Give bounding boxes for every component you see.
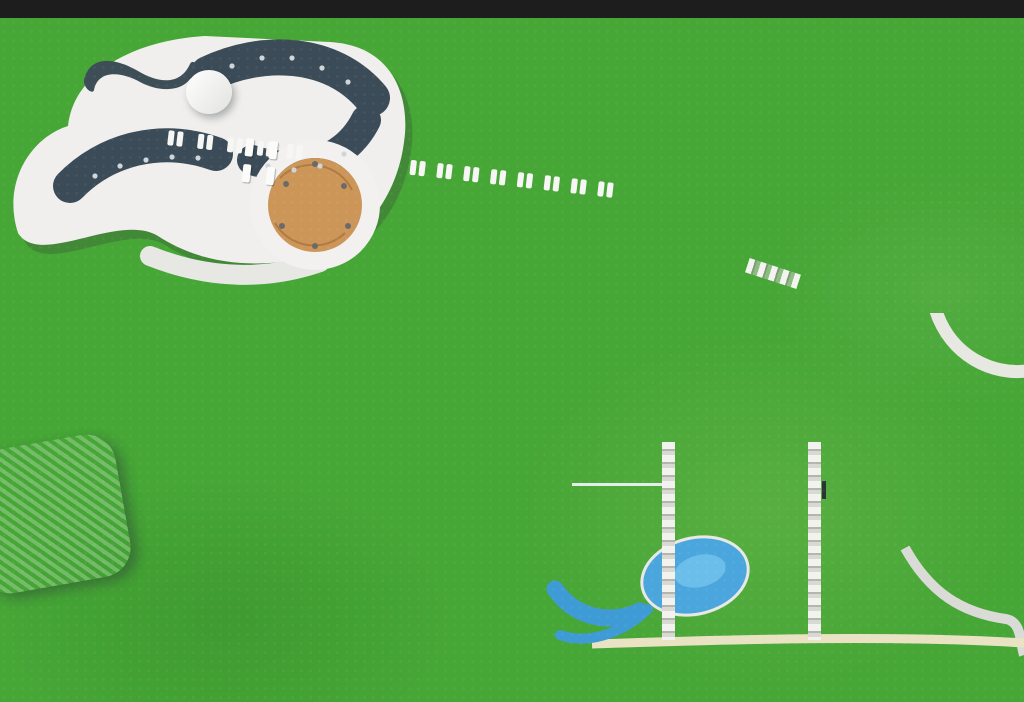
platform-lounger: [268, 141, 278, 160]
tree-icon: [541, 474, 569, 502]
tree-icon: [793, 406, 817, 430]
tree-icon: [642, 431, 668, 457]
road-lane-line: [0, 678, 1024, 680]
key-right: [822, 445, 864, 487]
tree-icon: [684, 400, 716, 432]
tree-icon: [214, 556, 246, 588]
shrub-tuft: [571, 614, 589, 630]
shrub-tuft: [523, 614, 541, 630]
resort-aerial-render: Propertync.com PROPERTYNC MEDIA COMPANY: [0, 18, 1024, 702]
tree-icon: [124, 572, 156, 604]
platform-lounger: [244, 138, 254, 157]
stairs: [745, 258, 801, 289]
sand-play-circle: [331, 549, 387, 601]
timber-pool-platform: [465, 248, 498, 277]
tree-icon: [535, 537, 561, 563]
spectator-steps-right: [808, 442, 821, 640]
sidewalk: [0, 638, 1024, 660]
tree-icon: [572, 498, 612, 538]
hoop-right: [822, 487, 826, 499]
shrub-tuft: [859, 614, 877, 630]
clubhouse-annex: [186, 70, 232, 114]
tree-icon: [892, 18, 918, 43]
football-pitch: [680, 436, 804, 648]
tree-icon: [916, 166, 944, 194]
tree-icon: [792, 18, 814, 31]
shrub-tuft: [1003, 614, 1021, 630]
tree-icon: [756, 18, 782, 37]
flower-bed: [180, 563, 210, 587]
spectator-steps-left: [662, 442, 675, 640]
tree-icon: [904, 208, 928, 232]
timber-pool-platform: [235, 131, 299, 195]
platform-lounger: [265, 167, 275, 186]
path-steps: [548, 408, 561, 616]
tree-icon: [656, 18, 678, 36]
tree-icon: [992, 18, 1022, 44]
tree-icon: [684, 18, 718, 38]
tree-icon: [55, 18, 77, 37]
tree-icon: [928, 18, 950, 37]
shrub-tuft: [763, 614, 781, 630]
tree-icon: [720, 18, 750, 43]
road: [0, 658, 1024, 702]
penalty-box-top: [649, 455, 711, 481]
shrub-tuft: [907, 614, 925, 630]
tree-icon: [548, 18, 582, 43]
tree-icon: [756, 401, 784, 429]
stairs: [874, 304, 890, 350]
tree-icon: [620, 18, 646, 42]
shrub-tuft: [715, 614, 733, 630]
shrub-tuft: [427, 614, 445, 630]
stairs: [800, 276, 863, 293]
shrub-tuft: [667, 614, 685, 630]
basketball-court: [822, 406, 998, 512]
shrub-tuft: [955, 614, 973, 630]
tree-icon: [398, 564, 442, 608]
tree-icon: [27, 23, 53, 49]
shrub-tuft: [475, 614, 493, 630]
platform-lounger: [241, 164, 251, 183]
tree-icon: [720, 406, 750, 436]
tree-icon: [632, 490, 664, 522]
tree-icon: [454, 552, 486, 584]
tree-icon: [820, 18, 854, 44]
tree-icon: [956, 18, 990, 39]
shrub-tuft: [811, 614, 829, 630]
flower-bed: [289, 561, 311, 579]
tree-icon: [856, 18, 886, 38]
tree-icon: [584, 18, 614, 37]
flower-bed: [236, 588, 264, 610]
tree-icon: [902, 122, 934, 154]
shrub-tuft: [619, 614, 637, 630]
